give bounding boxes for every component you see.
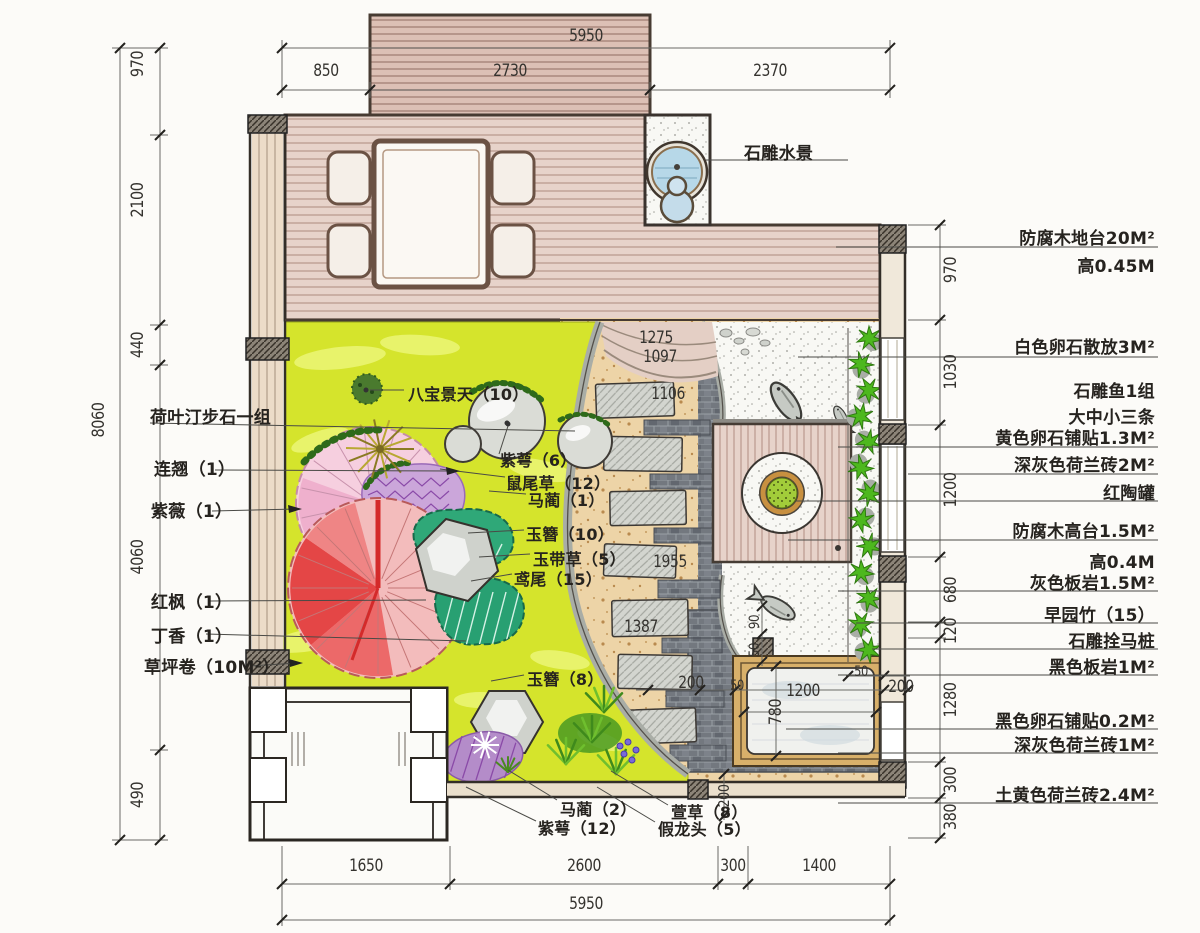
label-yellow-holland-brick: 土黄色荷兰砖2.4M²	[995, 781, 1155, 806]
label-white-pebbles: 白色卵石散放3M²	[1014, 333, 1155, 358]
label-stone-fish: 石雕鱼1组	[1074, 377, 1155, 402]
label-stone-hitching-post: 石雕拴马桩	[1069, 627, 1156, 652]
dim-left-1: 2100	[128, 182, 148, 217]
label-iris-lactea-1: 马蔺（1）	[528, 487, 605, 511]
annotation-layer: 5950850273023701650260030014005950970210…	[0, 0, 1200, 933]
dim-right-3: 680	[941, 577, 961, 603]
label-red-maple: 红枫（1）	[151, 588, 232, 613]
label-bamboo: 早园竹（15）	[1044, 601, 1155, 626]
garden-plan-canvas: 5950850273023701650260030014005950970210…	[0, 0, 1200, 933]
dim-interior-1: 1097	[643, 347, 677, 367]
label-red-clay-pot: 红陶罐	[1103, 479, 1155, 504]
dim-interior-4: 1387	[624, 617, 658, 637]
dim-interior-9: 200	[888, 677, 913, 697]
dim-interior-3: 1955	[653, 552, 687, 572]
dim-right-5: 1280	[941, 682, 961, 717]
label-hosta-ventricosa-12: 紫萼（12）	[538, 815, 626, 839]
dim-interior-8: 50	[854, 664, 868, 680]
dim-right-4: 120	[941, 618, 961, 644]
dim-interior-5: 200	[678, 673, 703, 693]
dim-right-6: 300	[941, 767, 961, 793]
dim-interior-0: 1275	[639, 328, 673, 348]
label-wood-deck-area: 防腐木地台20M²	[1019, 224, 1155, 249]
dim-interior-10: 780	[766, 699, 786, 725]
label-hosta-ventricosa-6: 紫萼（6）	[500, 447, 577, 471]
dim-bottom-2: 300	[720, 856, 745, 876]
dim-right-7: 380	[941, 804, 961, 830]
label-black-pebble-paving: 黑色卵石铺贴0.2M²	[995, 707, 1155, 732]
label-dark-grey-holland-brick-1: 深灰色荷兰砖1M²	[1014, 731, 1155, 756]
dim-right-1: 1030	[941, 354, 961, 389]
label-crape-myrtle: 紫薇（1）	[151, 497, 232, 522]
label-iris-15: 鸢尾（15）	[514, 566, 602, 590]
label-deck-height: 高0.45M	[1077, 252, 1155, 277]
label-grey-slate: 灰色板岩1.5M²	[1030, 569, 1155, 594]
dim-bottom-4: 5950	[569, 894, 603, 914]
dim-interior-12: 50	[747, 643, 763, 657]
label-lilac: 丁香（1）	[151, 622, 232, 647]
dim-left-5: 490	[128, 782, 148, 808]
dim-top-0: 5950	[569, 26, 603, 46]
label-stone-water-feature: 石雕水景	[744, 139, 813, 164]
label-wood-platform: 防腐木高台1.5M²	[1013, 517, 1155, 542]
dim-interior-2: 1106	[651, 384, 685, 404]
dim-bottom-1: 2600	[567, 856, 601, 876]
dim-top-1: 850	[313, 61, 338, 81]
dim-top-2: 2730	[493, 61, 527, 81]
dim-left-0: 970	[128, 51, 148, 77]
dim-right-0: 970	[941, 257, 961, 283]
label-black-slate: 黑色板岩1M²	[1049, 653, 1155, 678]
dim-top-3: 2370	[753, 61, 787, 81]
dim-right-2: 1200	[941, 472, 961, 507]
dim-interior-6: 50	[730, 678, 744, 694]
dim-left-4: 4060	[128, 539, 148, 574]
label-physostegia: 假龙头（5）	[658, 816, 751, 840]
label-lotus-stepping-stones: 荷叶汀步石一组	[150, 403, 271, 428]
label-lawn-roll: 草坪卷（10M²）	[144, 653, 280, 678]
dim-left-3: 8060	[89, 402, 109, 437]
dim-bottom-0: 1650	[349, 856, 383, 876]
dim-left-2: 440	[128, 332, 148, 358]
label-sedum: 八宝景天（10）	[408, 381, 529, 405]
label-hosta-8: 玉簪（8）	[527, 666, 604, 690]
label-dark-grey-holland-brick-2: 深灰色荷兰砖2M²	[1014, 451, 1155, 476]
dim-bottom-3: 1400	[802, 856, 836, 876]
label-hosta-10: 玉簪（10）	[526, 521, 614, 545]
label-forsythia: 连翘（1）	[154, 455, 235, 480]
dim-interior-7: 1200	[786, 681, 820, 701]
dim-interior-11: 90	[747, 615, 763, 629]
label-yellow-pebble-paving: 黄色卵石铺贴1.3M²	[995, 424, 1155, 449]
